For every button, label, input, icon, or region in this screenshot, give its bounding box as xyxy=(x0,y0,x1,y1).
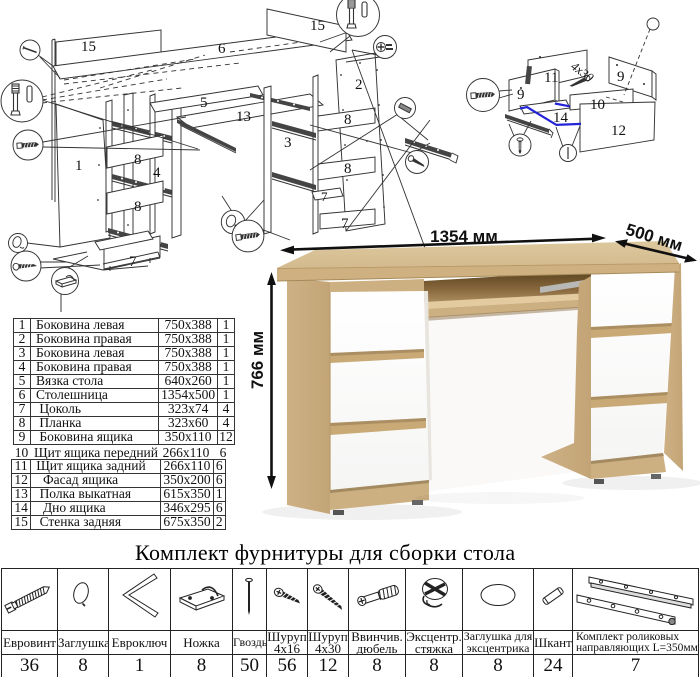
svg-text:1: 1 xyxy=(75,158,83,174)
svg-text:766 мм: 766 мм xyxy=(248,331,267,389)
svg-text:8: 8 xyxy=(134,152,142,168)
svg-text:1354 мм: 1354 мм xyxy=(430,227,498,246)
svg-text:15: 15 xyxy=(310,18,325,34)
svg-text:15: 15 xyxy=(81,39,96,55)
svg-text:7: 7 xyxy=(341,216,349,232)
svg-text:9: 9 xyxy=(617,69,625,85)
svg-text:6: 6 xyxy=(218,41,226,57)
svg-text:7: 7 xyxy=(321,189,328,204)
svg-text:8: 8 xyxy=(134,199,142,215)
svg-text:10: 10 xyxy=(590,97,605,113)
svg-text:7: 7 xyxy=(129,254,137,270)
svg-text:14: 14 xyxy=(553,110,569,126)
svg-text:12: 12 xyxy=(611,123,626,139)
svg-text:8: 8 xyxy=(344,161,352,177)
svg-text:4: 4 xyxy=(153,165,161,181)
svg-text:9: 9 xyxy=(517,87,525,103)
svg-text:3: 3 xyxy=(284,135,292,151)
svg-text:8: 8 xyxy=(344,112,352,128)
svg-text:2: 2 xyxy=(355,77,363,93)
svg-text:5: 5 xyxy=(200,95,208,111)
svg-text:11: 11 xyxy=(544,70,558,86)
svg-text:13: 13 xyxy=(236,109,251,125)
